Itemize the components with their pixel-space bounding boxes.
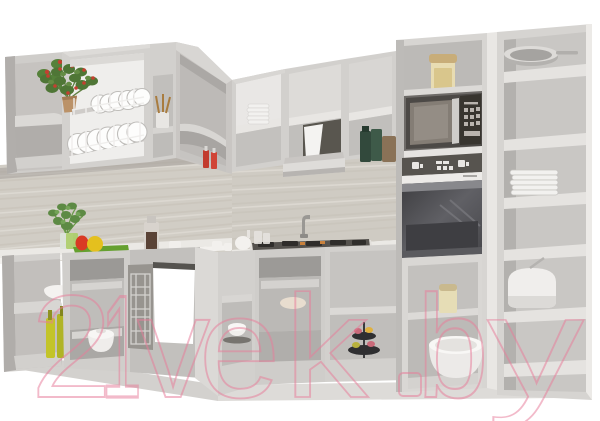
- svg-text:b: b: [417, 266, 488, 421]
- svg-text:2: 2: [31, 265, 112, 421]
- svg-text:1: 1: [101, 267, 142, 421]
- svg-text:k: k: [284, 266, 368, 421]
- svg-text:y: y: [487, 265, 584, 421]
- svg-text:e: e: [199, 265, 280, 421]
